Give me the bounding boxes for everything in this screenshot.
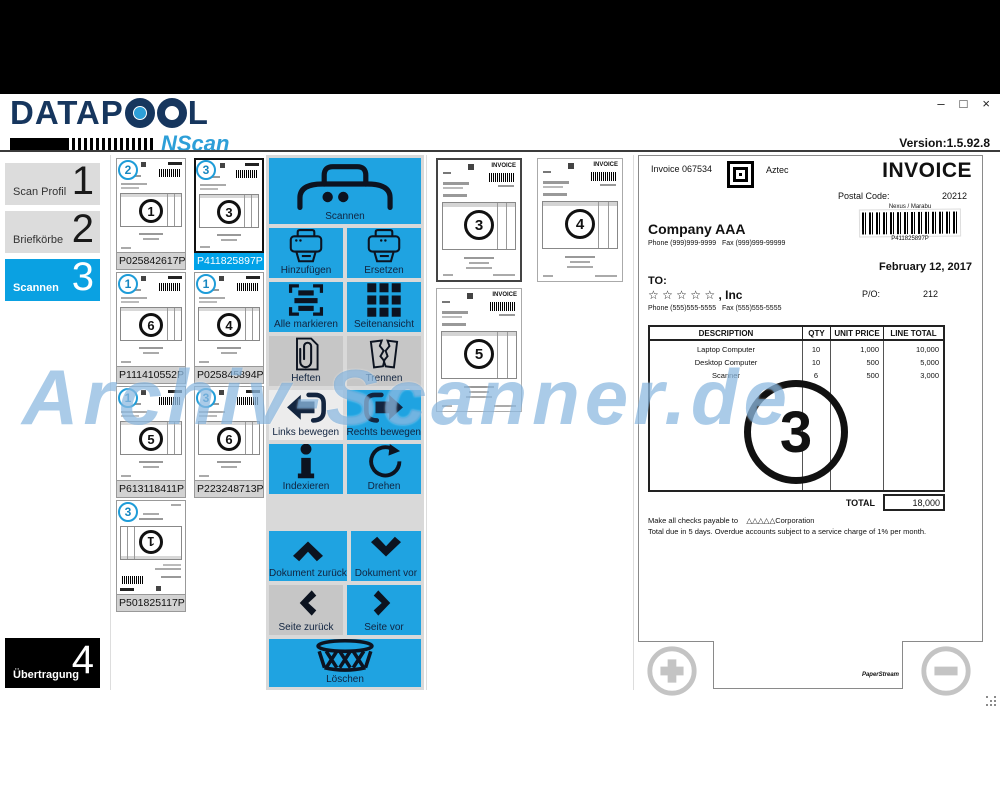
invoice-date: February 12, 2017: [879, 261, 972, 273]
grid-view-icon: [347, 282, 421, 318]
total-value: 18,000: [883, 494, 945, 511]
move-left-button[interactable]: Links bewegen: [269, 390, 343, 440]
move-right-icon: [347, 390, 422, 426]
document-barcode-label: P411825897P: [194, 253, 264, 270]
staple-button[interactable]: Heften: [269, 336, 343, 386]
page-number-stamp: 3: [744, 380, 848, 484]
brand-name: DATAPL: [10, 98, 229, 128]
app-window: ‒ □ × DATAPL NScan Version:1.5.92.8 Scan…: [0, 0, 1000, 800]
postal-code-value: 20212: [942, 191, 967, 201]
rotate-icon: [347, 444, 421, 480]
recipient-contact: Phone (555)555-5555 Fax (555)555-5555: [648, 305, 781, 312]
logo-barcode: NScan: [10, 131, 229, 157]
minimize-button[interactable]: ‒: [937, 97, 944, 110]
header-divider: [0, 150, 1000, 152]
move-right-button[interactable]: Rechts bewegen: [347, 390, 422, 440]
page-count-badge: 1: [118, 388, 138, 408]
aztec-label: Aztec: [766, 165, 789, 175]
paperclip-document-icon: [269, 336, 343, 372]
chevron-up-icon: [269, 531, 347, 567]
po-number: 212: [923, 289, 938, 299]
aztec-code-icon: [727, 161, 754, 188]
toolbar-spacer: [269, 498, 421, 527]
page-forward-button[interactable]: Seite vor: [347, 585, 421, 635]
version-label: Version:1.5.92.8: [899, 136, 990, 150]
maximize-button[interactable]: □: [960, 97, 968, 110]
document-barcode-label: P025842617P: [116, 253, 186, 270]
carrier-label: Nexus / Marabu: [862, 204, 958, 210]
document-thumbnail-4[interactable]: 1 4 P025845894P: [194, 272, 264, 384]
company-contact: Phone (999)999-9999 Fax (999)999-99999: [648, 240, 785, 247]
chevron-left-icon: [269, 585, 343, 621]
recipient-name: ☆ ☆ ☆ ☆ ☆ , Inc: [648, 288, 742, 302]
close-button[interactable]: ×: [982, 97, 990, 110]
info-i-icon: [269, 444, 343, 480]
page-thumbnail-3-selected[interactable]: INVOICE3: [436, 158, 522, 282]
sidebar-item-briefkoerbe[interactable]: Briefkörbe 2: [5, 211, 100, 253]
product-name: NScan: [161, 131, 229, 157]
document-thumbnail-1[interactable]: 2 1 P025842617P: [116, 158, 186, 270]
split-button[interactable]: Trennen: [347, 336, 421, 386]
barcode-image: [862, 211, 958, 234]
scan-button[interactable]: Scannen: [269, 158, 421, 224]
page-thumbnail-4[interactable]: INVOICE4: [537, 158, 623, 282]
printer-add-icon: [269, 228, 343, 264]
index-button[interactable]: Indexieren: [269, 444, 343, 494]
document-thumbnail-panel: 2 1 P025842617P 3 3 P411825897P 1 6 P111…: [110, 155, 266, 690]
document-barcode-label: P613118411P: [116, 481, 186, 498]
document-barcode-label: P025845894P: [194, 367, 264, 384]
logo-o-icon: [157, 98, 187, 128]
sidebar-item-uebertragung[interactable]: Übertragung 4: [5, 638, 100, 688]
invoice-note-2: Total due in 5 days. Overdue accounts su…: [648, 527, 926, 536]
rotate-button[interactable]: Drehen: [347, 444, 421, 494]
invoice-title: INVOICE: [882, 159, 972, 183]
document-barcode-label: P223248713P: [194, 481, 264, 498]
page-back-button[interactable]: Seite zurück: [269, 585, 343, 635]
document-thumbnail-7-rotated[interactable]: 3 1 P501825117P: [116, 500, 186, 612]
invoice-table: DESCRIPTION QTY UNIT PRICE LINE TOTAL La…: [648, 325, 945, 492]
document-thumbnail-2-selected[interactable]: 3 3 P411825897P: [194, 158, 264, 270]
to-label: TO:: [648, 275, 667, 287]
mark-all-icon: [269, 282, 343, 318]
document-barcode-label: P501825117P: [116, 595, 186, 612]
table-row: Desktop Computer 10 500 5,000: [650, 356, 943, 369]
add-button[interactable]: Hinzufügen: [269, 228, 343, 278]
scan-toolbar: Scannen Hinzufügen Ersetzen Alle m: [266, 155, 424, 690]
page-count-badge: 1: [196, 274, 216, 294]
mark-all-button[interactable]: Alle markieren: [269, 282, 343, 332]
postal-code-label: Postal Code:: [838, 191, 890, 201]
document-barcode-label: P111410552P: [116, 367, 186, 384]
total-label: TOTAL: [815, 498, 875, 508]
resize-grip[interactable]: [986, 696, 988, 698]
invoice-note-1: Make all checks payable to △△△△△Corporat…: [648, 516, 814, 525]
replace-button[interactable]: Ersetzen: [347, 228, 421, 278]
page-count-badge: 3: [196, 388, 216, 408]
logo-o-icon: [125, 98, 155, 128]
page-count-badge: 3: [196, 160, 216, 180]
scanner-icon: [269, 158, 421, 210]
paperstream-brand: PaperStream: [835, 672, 899, 678]
sidebar-item-scannen[interactable]: Scannen 3: [5, 259, 100, 301]
page-count-badge: 1: [118, 274, 138, 294]
chevron-down-icon: [351, 531, 421, 567]
page-view-button[interactable]: Seitenansicht: [347, 282, 421, 332]
document-forward-button[interactable]: Dokument vor: [351, 531, 421, 581]
invoice-number: Invoice 067534: [651, 164, 712, 174]
document-thumbnail-3[interactable]: 1 6 P111410552P: [116, 272, 186, 384]
waste-basket-icon: [269, 639, 421, 673]
page-thumbnail-panel: INVOICE3 INVOICE4 INVOICE5: [426, 155, 634, 690]
datapool-logo: DATAPL NScan: [10, 98, 229, 157]
window-controls: ‒ □ ×: [937, 97, 990, 110]
delete-button[interactable]: Löschen: [269, 639, 421, 687]
document-back-button[interactable]: Dokument zurück: [269, 531, 347, 581]
document-thumbnail-5[interactable]: 1 5 P613118411P: [116, 386, 186, 498]
torn-paper-icon: [347, 336, 421, 372]
document-preview-panel: Invoice 067534 Aztec INVOICE Postal Code…: [635, 155, 1000, 690]
document-thumbnail-6[interactable]: 3 6 P223248713P: [194, 386, 264, 498]
viewer-tab: [713, 642, 903, 689]
company-name: Company AAA: [648, 221, 746, 237]
printer-replace-icon: [347, 228, 421, 264]
po-label: P/O:: [862, 289, 880, 299]
page-count-badge: 3: [118, 502, 138, 522]
page-count-badge: 2: [118, 160, 138, 180]
top-banner: [0, 0, 1000, 94]
invoice-table-header: DESCRIPTION QTY UNIT PRICE LINE TOTAL: [650, 327, 943, 341]
page-thumbnail-5[interactable]: INVOICE5: [436, 288, 522, 412]
table-row: Laptop Computer 10 1,000 10,000: [650, 343, 943, 356]
zoom-out-button[interactable]: [919, 644, 973, 698]
sidebar-item-scan-profil[interactable]: Scan Profil 1: [5, 163, 100, 205]
barcode-value: P411825897P: [862, 236, 958, 242]
move-left-icon: [269, 390, 343, 426]
chevron-right-icon: [347, 585, 421, 621]
zoom-in-button[interactable]: [645, 644, 699, 698]
